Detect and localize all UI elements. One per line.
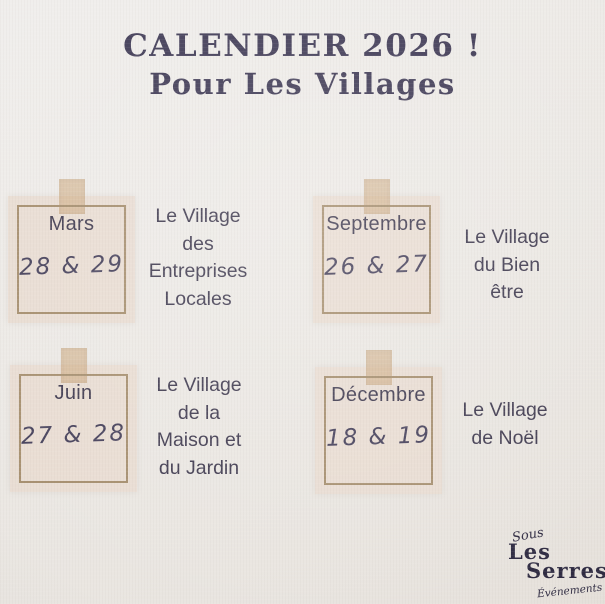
event-card-juin: Juin 27 & 28 (10, 365, 137, 492)
event-village-label: Le Village de la Maison et du Jardin (135, 372, 263, 482)
event-card-septembre: Septembre 26 & 27 (313, 196, 440, 323)
event-dates: 28 & 29 (8, 251, 136, 281)
title-line-2: Pour Les Villages (0, 65, 605, 103)
poster-title: CALENDIER 2026 ! Pour Les Villages (0, 27, 605, 103)
logo-name-serres: Serres (526, 558, 605, 583)
event-village-label: Le Village de Noël (440, 397, 570, 452)
logo-script-suffix: Événements (537, 582, 603, 601)
event-month: Septembre (313, 213, 440, 236)
event-month: Mars (8, 213, 135, 236)
event-card-mars: Mars 28 & 29 (8, 196, 135, 323)
event-dates: 18 & 19 (315, 422, 443, 452)
event-dates: 26 & 27 (313, 251, 441, 281)
event-month: Décembre (315, 384, 442, 407)
event-dates: 27 & 28 (10, 420, 138, 450)
event-card-decembre: Décembre 18 & 19 (315, 367, 442, 494)
event-village-label: Le Village du Bien être (443, 224, 571, 307)
event-village-label: Le Village des Entreprises Locales (133, 203, 263, 313)
title-line-1: CALENDIER 2026 ! (0, 27, 605, 65)
brand-logo: Sous Les Serres Événements (497, 530, 603, 600)
event-month: Juin (10, 382, 137, 405)
